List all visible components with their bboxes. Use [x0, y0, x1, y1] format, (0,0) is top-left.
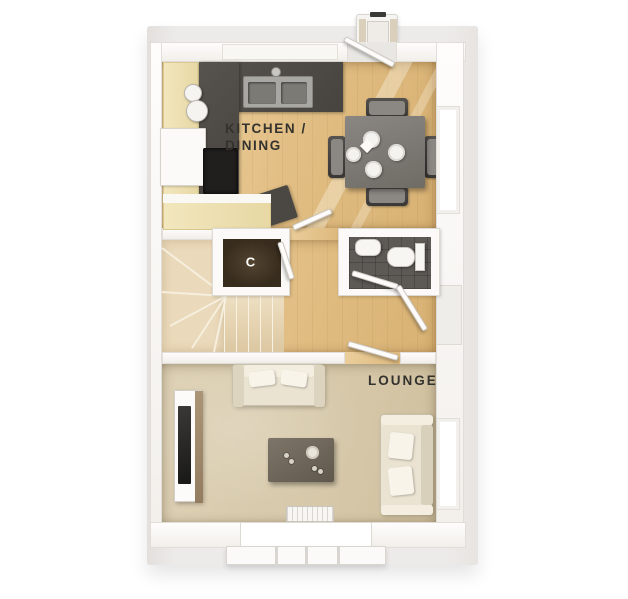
kitchen-worktop-edge: [163, 194, 271, 203]
wall-hall-lounge: [162, 352, 345, 364]
sink-bowl: [248, 82, 276, 104]
cupboard-label: C: [246, 255, 256, 270]
toilet-bowl-icon: [387, 247, 415, 267]
decor-dot: [289, 459, 294, 464]
faucet-icon: [272, 68, 280, 76]
sink-bowl: [281, 82, 307, 104]
sofa-back: [421, 425, 433, 505]
decor-dot: [312, 466, 317, 471]
bay-window: [226, 546, 386, 565]
decor-dot: [318, 469, 323, 474]
plate: [346, 147, 361, 162]
wall-hall-lounge: [400, 352, 436, 364]
stair-tread: [248, 296, 260, 352]
cushion: [388, 432, 415, 460]
dining-chair: [366, 186, 408, 206]
coffee-table: [268, 438, 334, 482]
decor-dot: [284, 453, 289, 458]
cushion: [388, 466, 415, 496]
kitchen-window: [222, 44, 338, 60]
porch-canopy: [370, 12, 386, 17]
pot-icon: [186, 100, 208, 122]
bay-mullion: [275, 547, 278, 566]
dining-window: [436, 106, 460, 214]
stair-tread: [272, 296, 284, 352]
wall-left: [150, 42, 162, 548]
tv-unit-shelf: [195, 391, 203, 503]
basin-icon: [355, 239, 381, 256]
sofa-armrest: [314, 365, 325, 407]
kitchen-appliance: [160, 128, 206, 186]
radiator: [286, 506, 334, 522]
chair-seat: [369, 101, 405, 115]
hob-icon: [203, 148, 238, 194]
sofa: [232, 364, 324, 406]
stair-tread: [236, 296, 248, 352]
lounge-side-window: [436, 418, 460, 510]
kitchen-dining-label-line1: KITCHEN /: [225, 120, 307, 137]
chair-seat: [331, 139, 343, 175]
second-sofa: [380, 414, 432, 514]
sink-icon: [243, 76, 313, 108]
dining-chair: [366, 98, 408, 118]
chair-seat: [369, 189, 405, 203]
floor-plan: KITCHEN / DINING C: [0, 0, 628, 599]
sofa-armrest: [381, 505, 433, 515]
sofa-armrest: [233, 365, 244, 407]
sofa-armrest: [381, 415, 433, 425]
stair-tread: [224, 296, 236, 352]
toilet-cistern-icon: [415, 243, 425, 271]
cushion: [280, 369, 308, 387]
bay-window-sill: [240, 522, 372, 548]
kitchen-dining-label-line2: DINING: [225, 137, 307, 154]
tv-icon: [178, 406, 191, 484]
bay-mullion: [337, 547, 340, 566]
cushion: [248, 369, 276, 387]
plate: [388, 144, 405, 161]
dining-chair: [328, 136, 346, 178]
plate: [365, 161, 382, 178]
bowl-icon: [306, 446, 319, 459]
bay-mullion: [305, 547, 308, 566]
stair-tread: [260, 296, 272, 352]
kitchen-dining-label: KITCHEN / DINING: [225, 120, 307, 154]
lounge-label: LOUNGE: [368, 372, 438, 389]
